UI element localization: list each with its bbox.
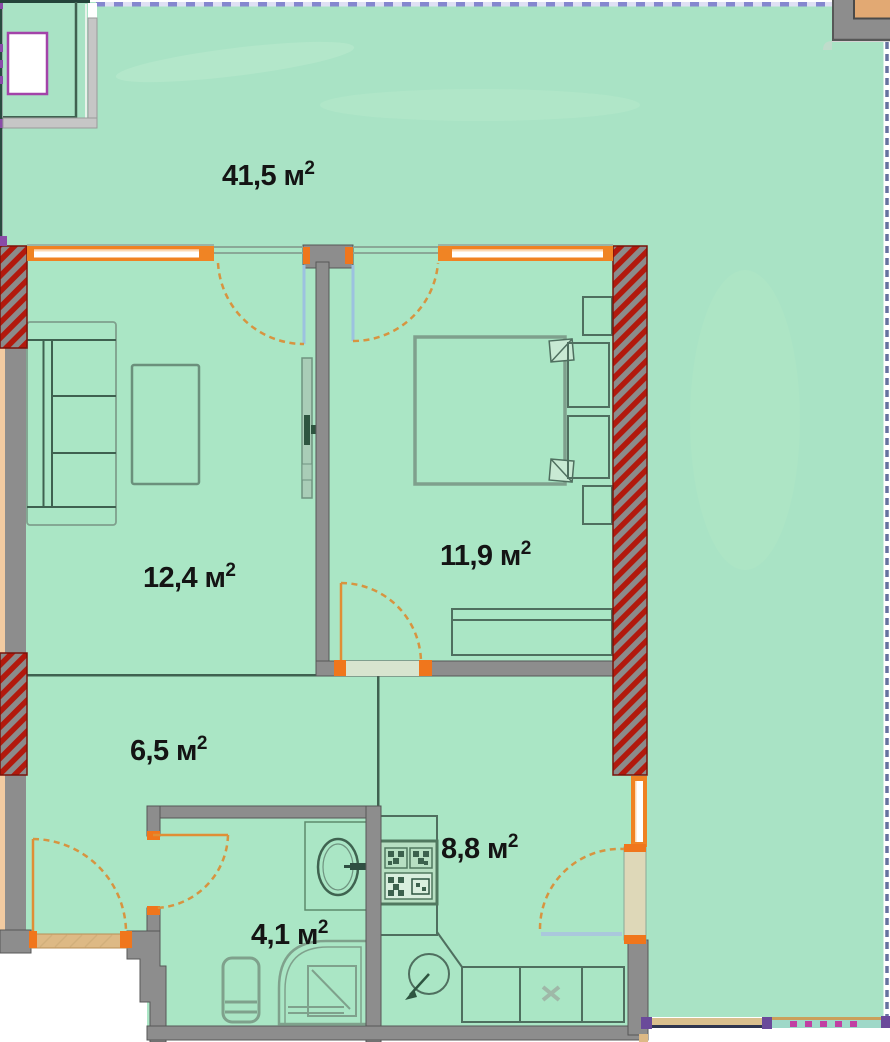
svg-text:4,1 м2: 4,1 м2 xyxy=(251,917,328,951)
svg-text:8,8 м2: 8,8 м2 xyxy=(441,831,518,865)
svg-text:6,5 м2: 6,5 м2 xyxy=(130,733,207,767)
svg-text:41,5 м2: 41,5 м2 xyxy=(222,158,314,192)
svg-text:11,9 м2: 11,9 м2 xyxy=(440,538,531,572)
svg-text:12,4 м2: 12,4 м2 xyxy=(143,560,235,594)
